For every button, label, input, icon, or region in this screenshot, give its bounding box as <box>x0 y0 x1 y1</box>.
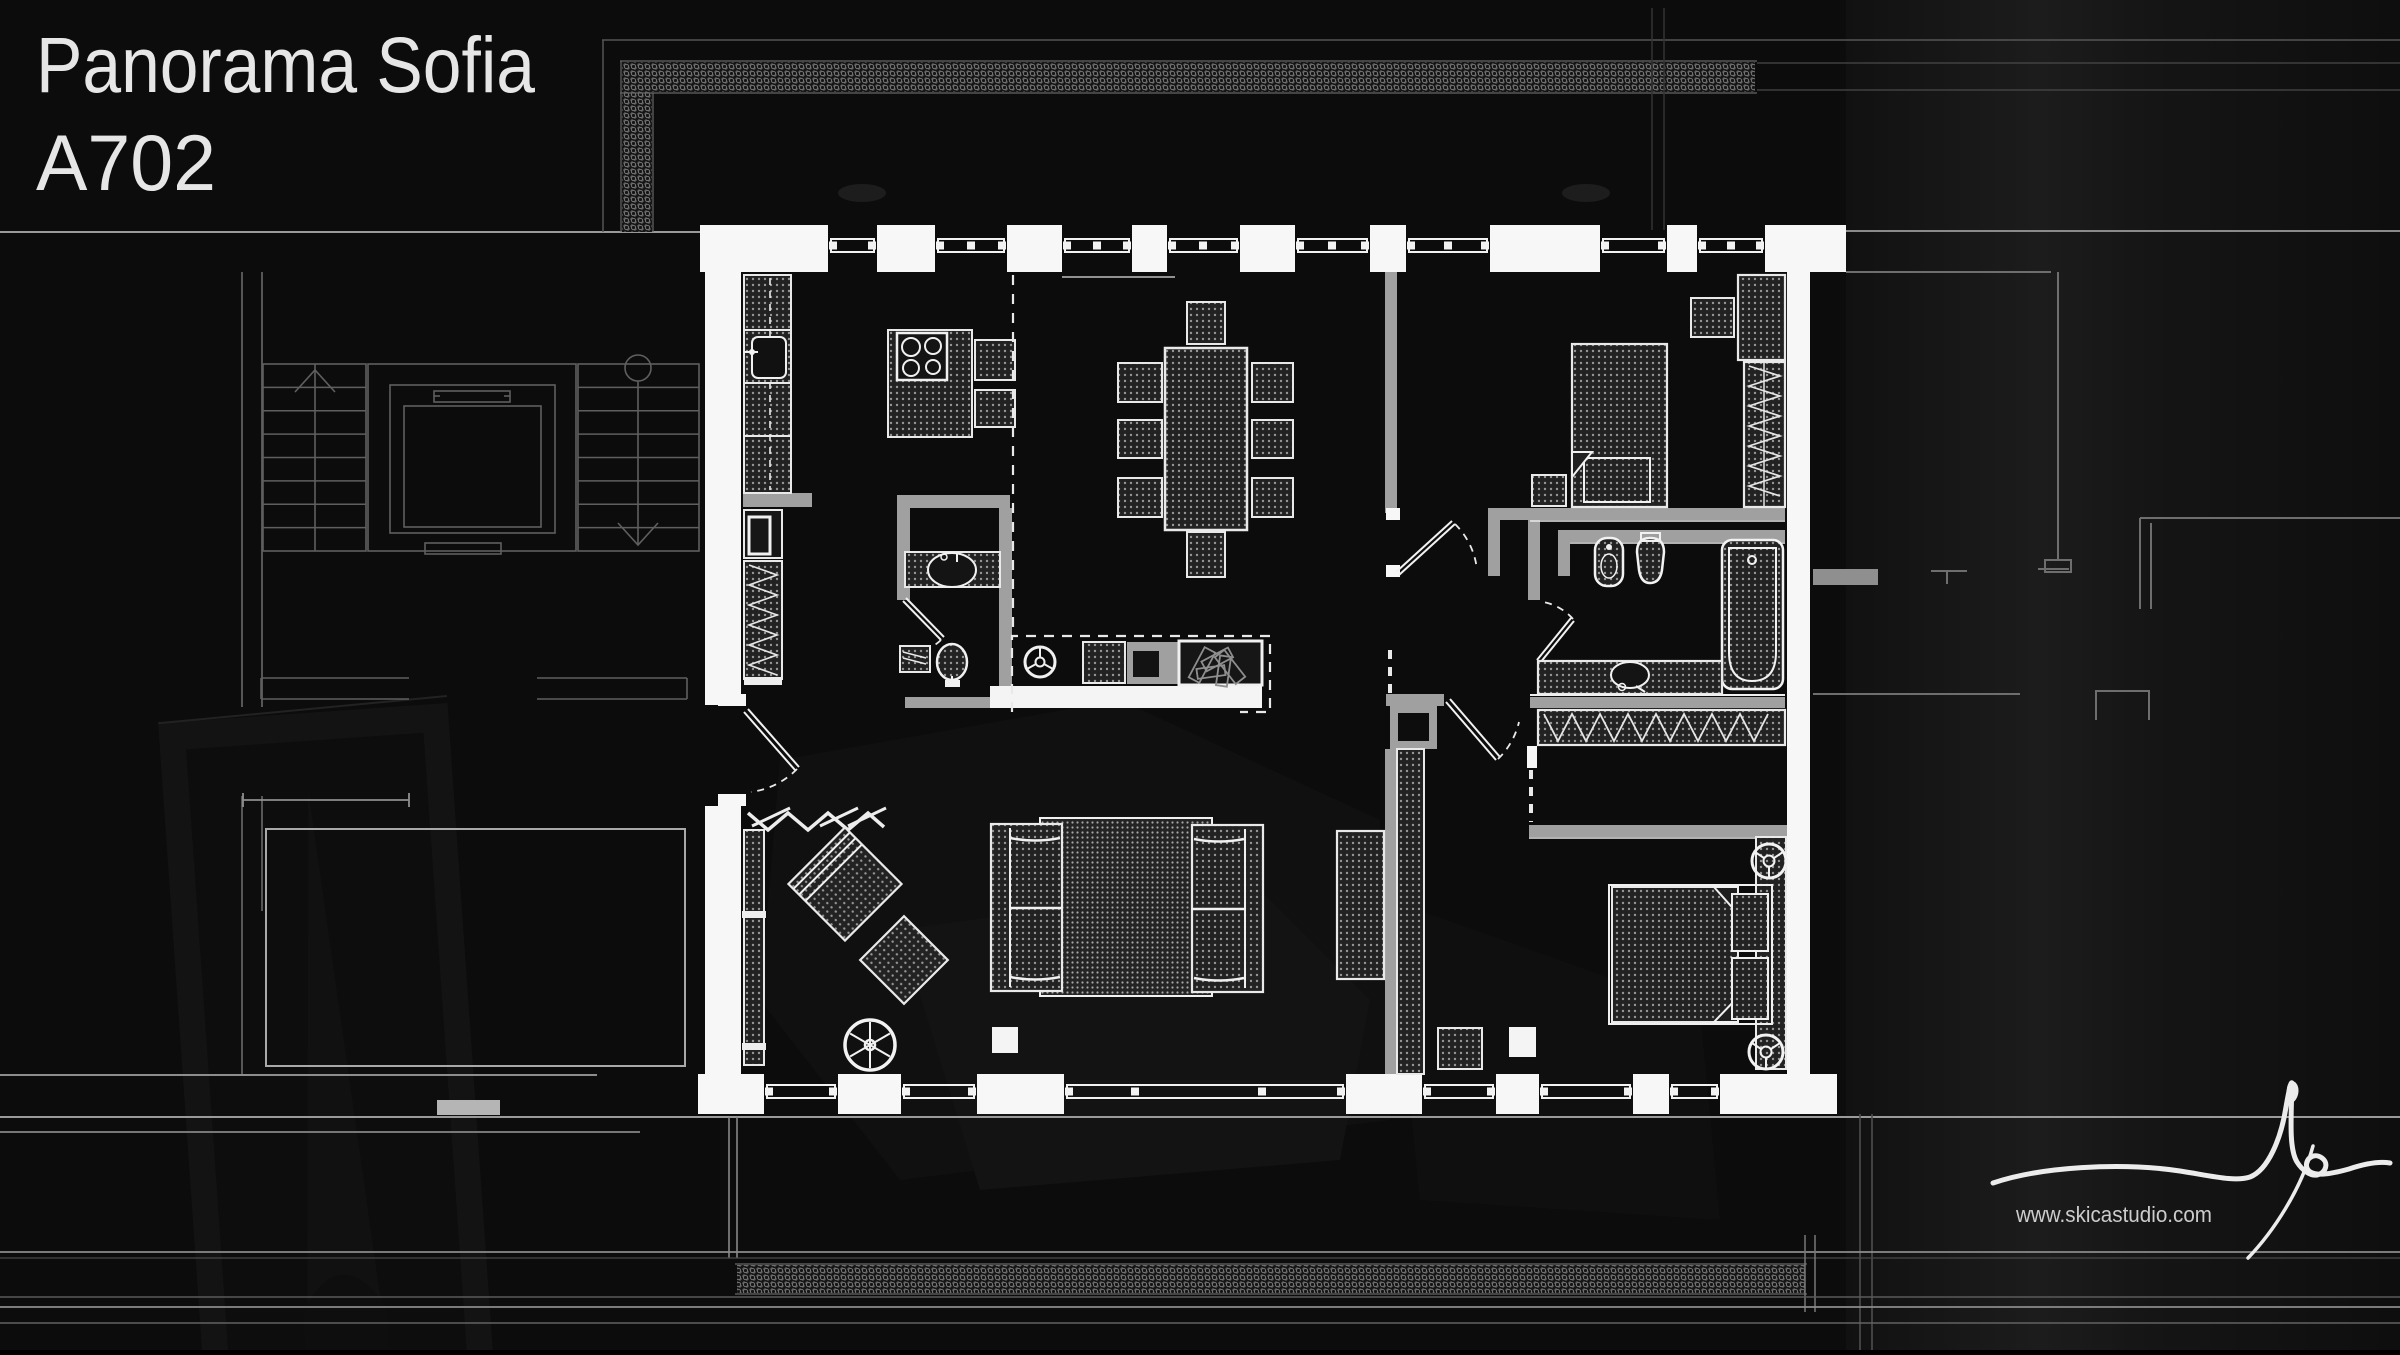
svg-text:Panorama Sofia: Panorama Sofia <box>36 20 535 109</box>
svg-text:A702: A702 <box>36 118 216 207</box>
svg-text:www.skicastudio.com: www.skicastudio.com <box>2015 1202 2212 1227</box>
